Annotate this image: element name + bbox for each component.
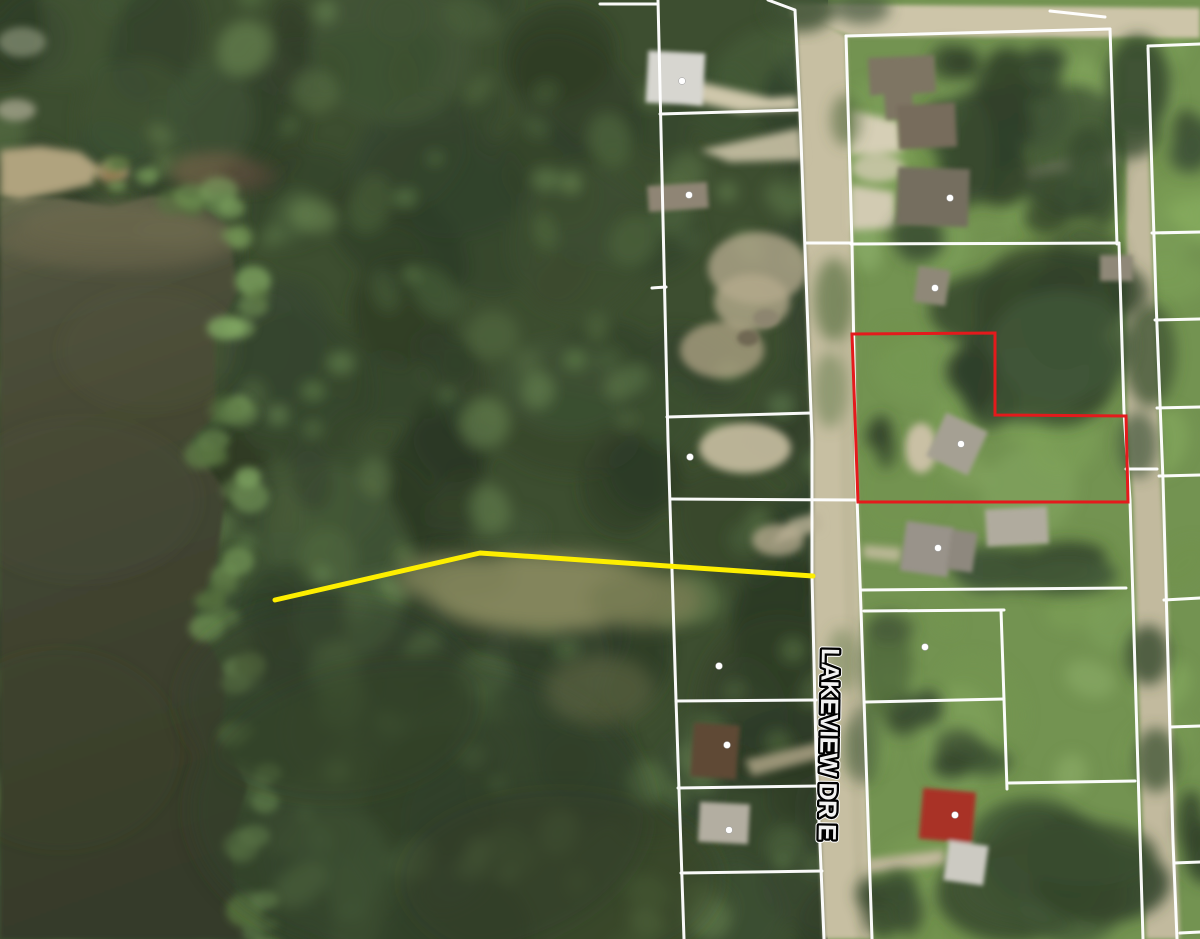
svg-text:LAKEVIEW DR E: LAKEVIEW DR E (813, 648, 844, 841)
